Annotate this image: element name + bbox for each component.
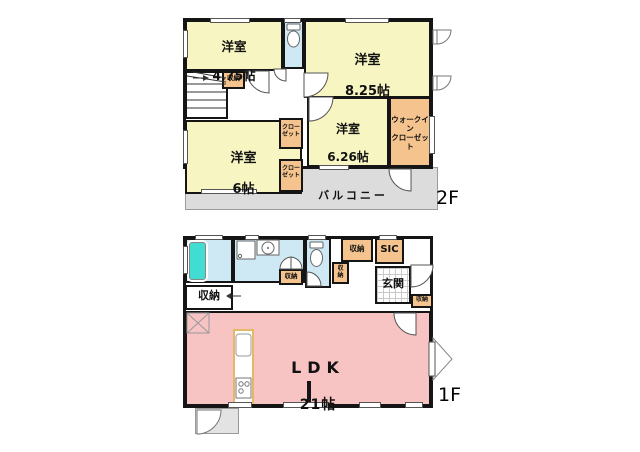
room-label-storage-hall: 収納 bbox=[185, 290, 233, 303]
room-label-shoe-closet: SIC bbox=[375, 244, 404, 256]
room-label-closet-lower: クロー ゼット bbox=[279, 165, 303, 179]
room-label-storage-toilet: 収 納 bbox=[332, 265, 349, 279]
room-toilet-1f bbox=[305, 238, 331, 288]
window bbox=[308, 235, 326, 240]
room-label-bedroom-475: 洋室 4.75帖 bbox=[185, 25, 283, 99]
room-name: 洋室 bbox=[307, 122, 389, 136]
floorplan-canvas: 洋室 4.75帖 洋室 8.25帖 洋室 6帖 洋室 6.26帖 ウォークイン … bbox=[0, 0, 640, 452]
casement-window-icon bbox=[433, 30, 451, 90]
room-label-storage-entry-side: 収納 bbox=[411, 296, 433, 303]
floor-1-tag: 1F bbox=[438, 384, 461, 406]
room-label-ldk: LDK 21帖 bbox=[208, 340, 428, 432]
window bbox=[379, 235, 397, 240]
room-label-walkin-closet: ウォークイン クローゼット bbox=[389, 116, 431, 151]
room-size: 6帖 bbox=[185, 182, 302, 197]
bathtub-icon bbox=[189, 242, 206, 280]
room-label-entrance: 玄関 bbox=[375, 278, 411, 291]
room-name: LDK bbox=[208, 359, 428, 378]
window bbox=[210, 18, 250, 23]
room-label-storage-2f: 収納 bbox=[222, 75, 245, 83]
room-label-bedroom-825: 洋室 8.25帖 bbox=[304, 38, 431, 115]
room-label-bedroom-626: 洋室 6.26帖 bbox=[307, 108, 389, 179]
window bbox=[345, 18, 389, 23]
balcony-label: バルコニー bbox=[288, 190, 418, 203]
floor-2-tag: 2F bbox=[436, 187, 459, 209]
room-label-closet-upper: クロー ゼット bbox=[279, 124, 303, 138]
room-toilet-2f bbox=[283, 20, 304, 69]
floor-2-plan: 洋室 4.75帖 洋室 8.25帖 洋室 6帖 洋室 6.26帖 ウォークイン … bbox=[183, 18, 463, 214]
window-casement-triangle bbox=[433, 338, 452, 380]
room-label-storage-hall-top: 収納 bbox=[341, 245, 373, 254]
room-label-storage-washroom: 収納 bbox=[279, 273, 303, 281]
room-size: 21帖 bbox=[208, 397, 428, 414]
window bbox=[245, 235, 259, 240]
floor-1-plan: 収納 収納 収 納 収納 SIC 玄関 収納 LDK 21帖 bbox=[183, 232, 463, 436]
room-name: 洋室 bbox=[185, 40, 283, 55]
window bbox=[195, 235, 223, 240]
window bbox=[183, 246, 188, 274]
window bbox=[284, 18, 301, 23]
room-size: 8.25帖 bbox=[304, 84, 431, 99]
room-name: 洋室 bbox=[304, 53, 431, 68]
room-size: 6.26帖 bbox=[307, 150, 389, 164]
